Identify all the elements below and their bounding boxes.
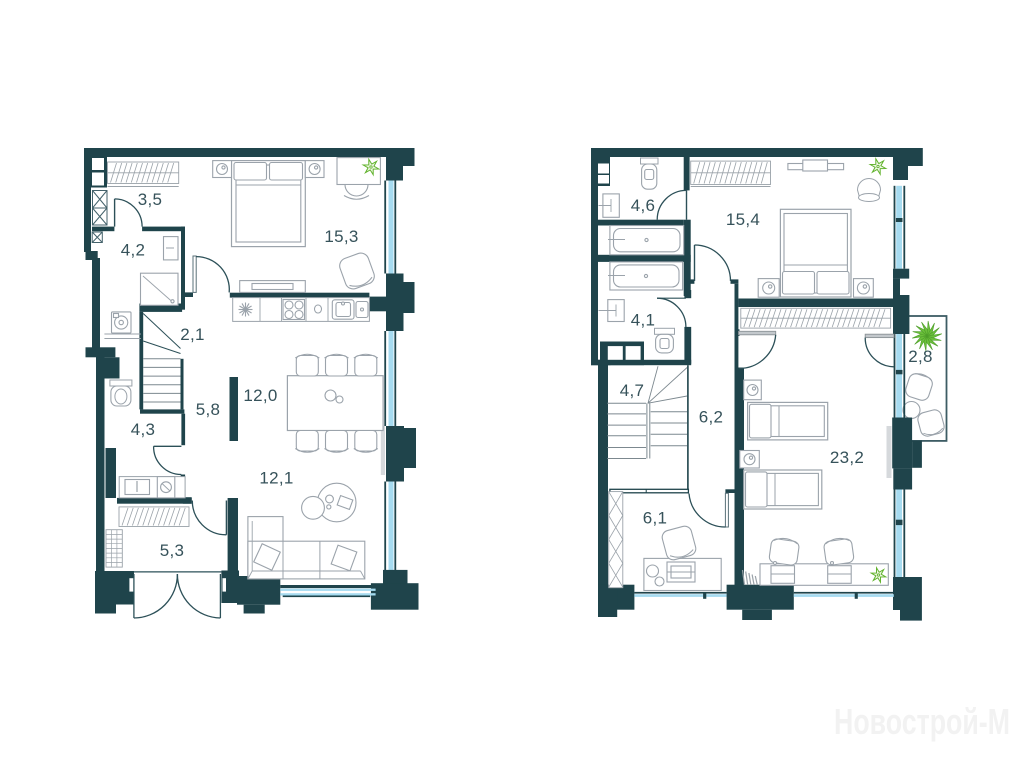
svg-text:3,5: 3,5 <box>138 190 163 209</box>
svg-text:2,1: 2,1 <box>180 325 205 344</box>
svg-text:6,2: 6,2 <box>699 408 724 427</box>
svg-text:4,6: 4,6 <box>631 196 656 215</box>
svg-text:4,1: 4,1 <box>631 311 656 330</box>
svg-text:6,1: 6,1 <box>643 509 668 528</box>
svg-text:4,7: 4,7 <box>620 381 645 400</box>
svg-text:5,3: 5,3 <box>160 541 185 560</box>
svg-text:12,0: 12,0 <box>243 386 277 405</box>
svg-text:Новострой-М: Новострой-М <box>834 701 1010 742</box>
svg-text:5,8: 5,8 <box>196 400 221 419</box>
svg-text:12,1: 12,1 <box>259 469 293 488</box>
svg-text:15,4: 15,4 <box>726 210 760 229</box>
svg-text:4,2: 4,2 <box>121 241 146 260</box>
svg-text:15,3: 15,3 <box>324 227 358 246</box>
svg-text:4,3: 4,3 <box>131 420 156 439</box>
svg-text:2,8: 2,8 <box>908 347 933 366</box>
svg-text:23,2: 23,2 <box>830 448 864 467</box>
